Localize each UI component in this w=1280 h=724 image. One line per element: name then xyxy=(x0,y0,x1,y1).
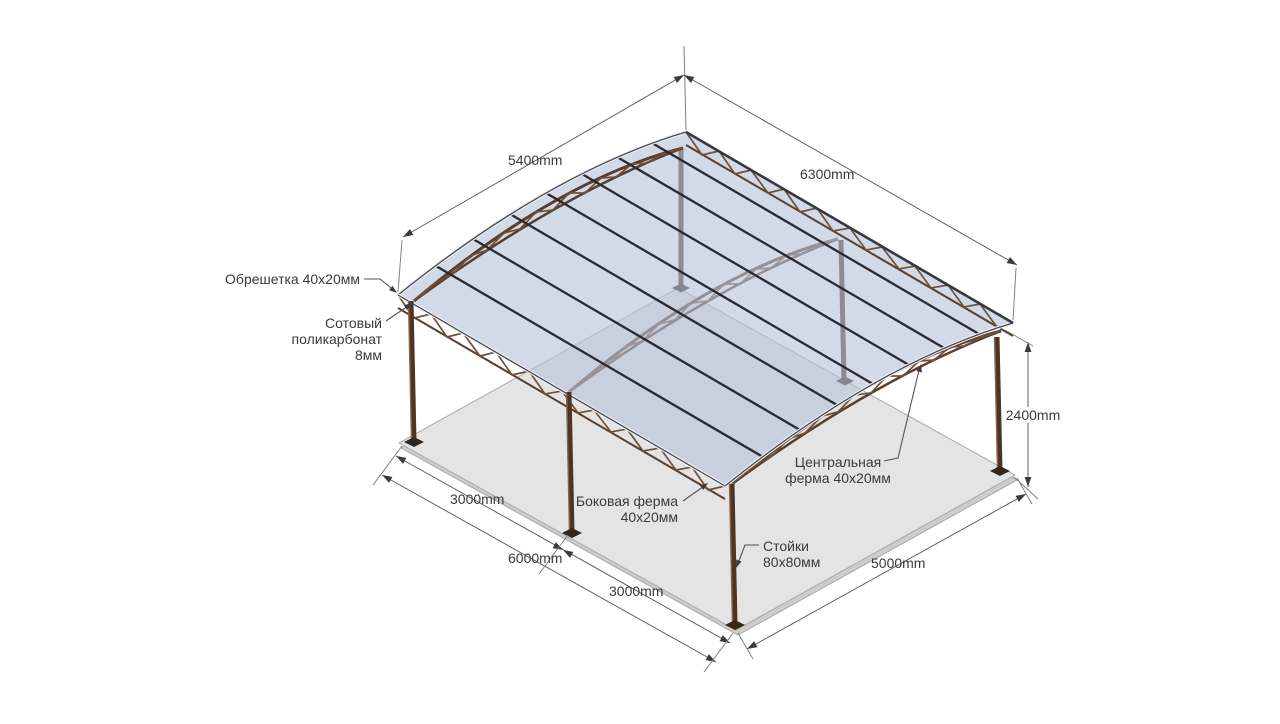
label-polycarbonate: Сотовый поликарбонат 8мм xyxy=(252,315,382,363)
label-central-truss: Центральная ферма 40х20мм xyxy=(768,454,908,486)
dim-label-bay-second: 3000mm xyxy=(609,583,663,599)
drawing-canvas xyxy=(0,0,1280,724)
dim-label-bay-first: 3000mm xyxy=(450,491,504,507)
dim-label-roof-length: 6300mm xyxy=(800,166,854,182)
dim-label-post-height: 2400mm xyxy=(1002,407,1064,423)
dim-label-floor-width: 5000mm xyxy=(871,555,925,571)
canopy-technical-drawing: 5400mm 6300mm 2400mm 3000mm 6000mm 3000m… xyxy=(0,0,1280,724)
label-side-truss: Боковая ферма 40х20мм xyxy=(538,493,678,525)
dim-label-side-total: 6000mm xyxy=(508,550,562,566)
dim-label-roof-arc: 5400mm xyxy=(508,152,562,168)
label-lathing: Обрешетка 40х20мм xyxy=(210,271,360,287)
label-posts: Стойки 80х80мм xyxy=(763,538,820,570)
